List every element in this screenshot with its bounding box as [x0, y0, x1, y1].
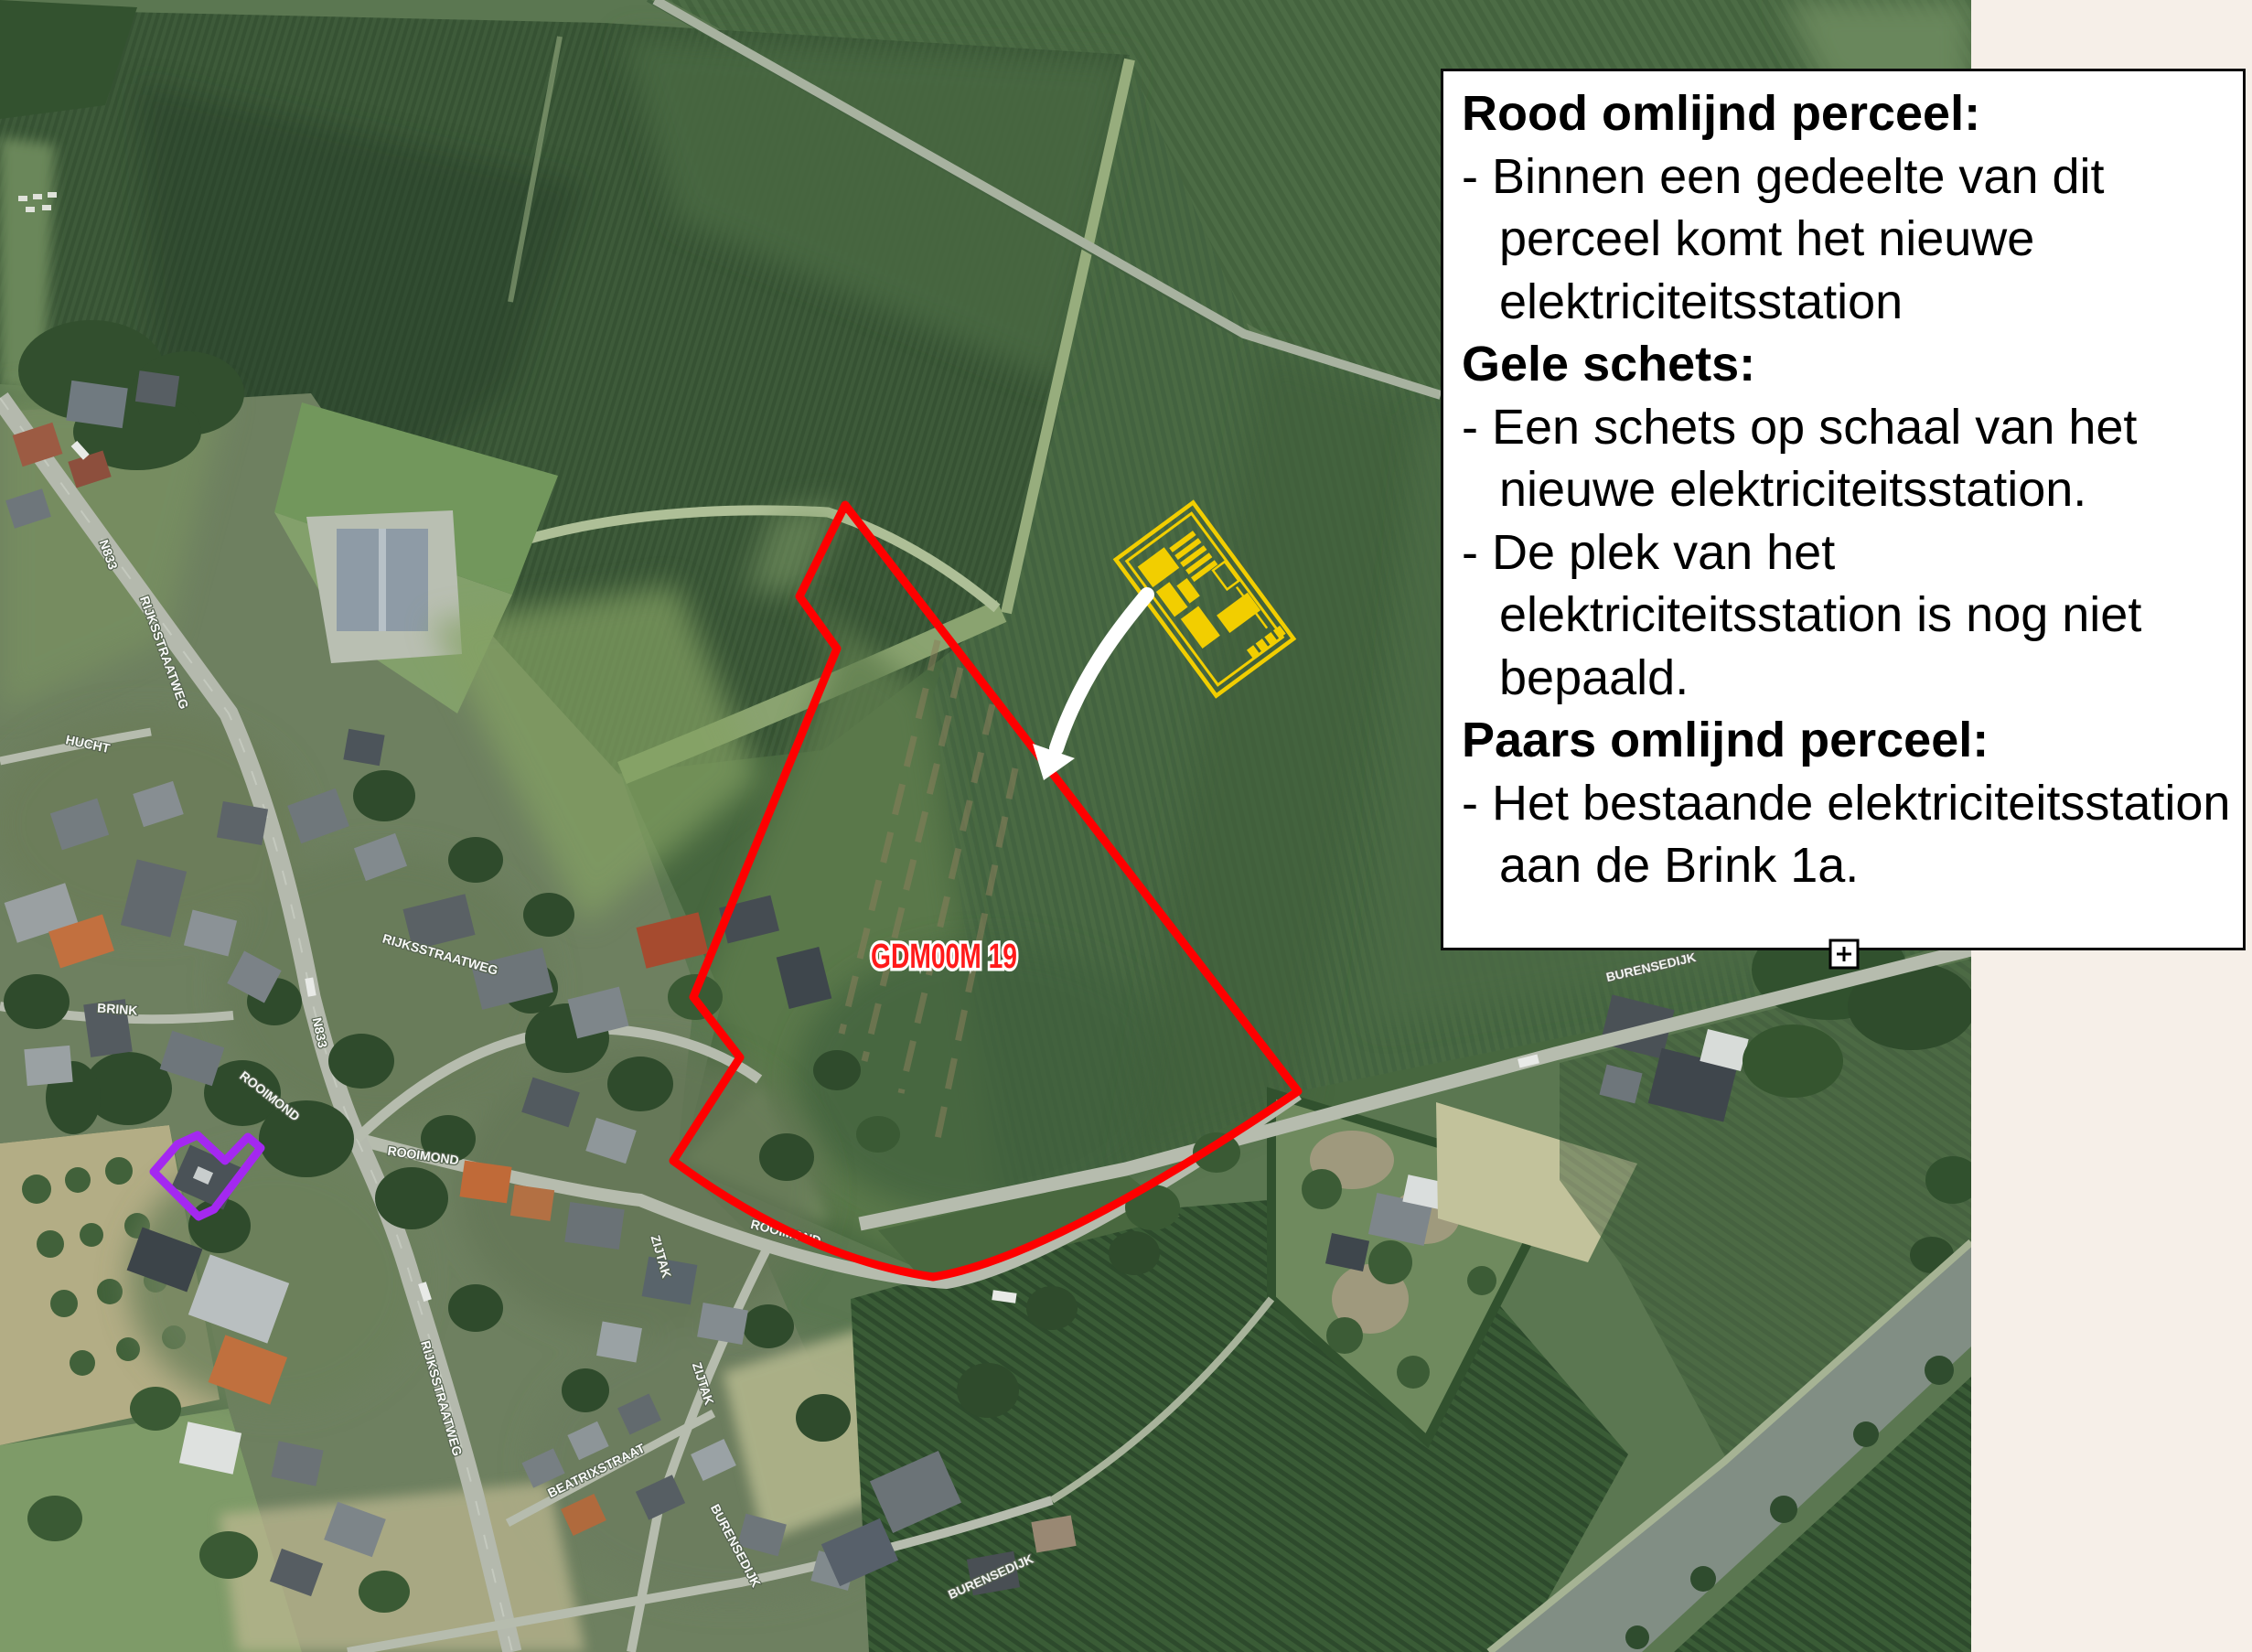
svg-text:GDM00M 19: GDM00M 19 [871, 938, 1017, 976]
svg-text:BRINK: BRINK [97, 1000, 138, 1017]
